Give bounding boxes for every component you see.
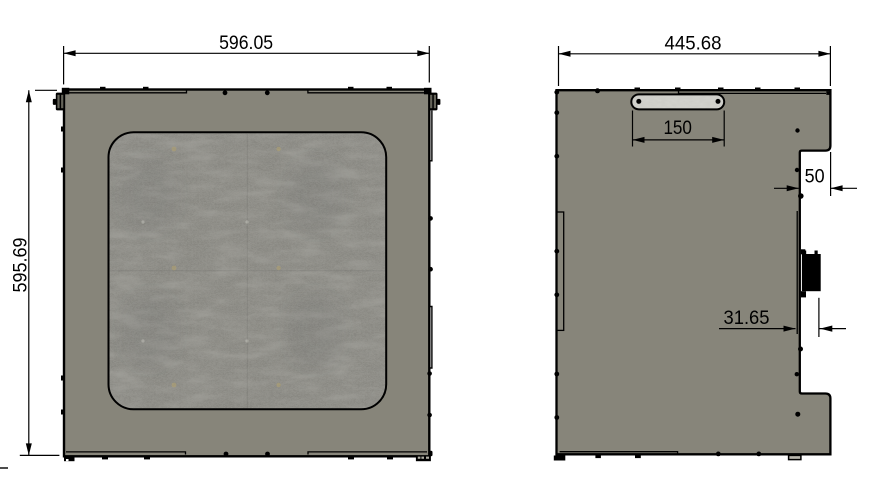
svg-text:596.05: 596.05 (219, 32, 273, 54)
svg-text:31.65: 31.65 (724, 307, 770, 329)
svg-text:445.68: 445.68 (665, 32, 722, 54)
svg-text:150: 150 (663, 117, 692, 139)
svg-text:595.69: 595.69 (10, 238, 32, 293)
svg-text:50: 50 (805, 165, 825, 187)
